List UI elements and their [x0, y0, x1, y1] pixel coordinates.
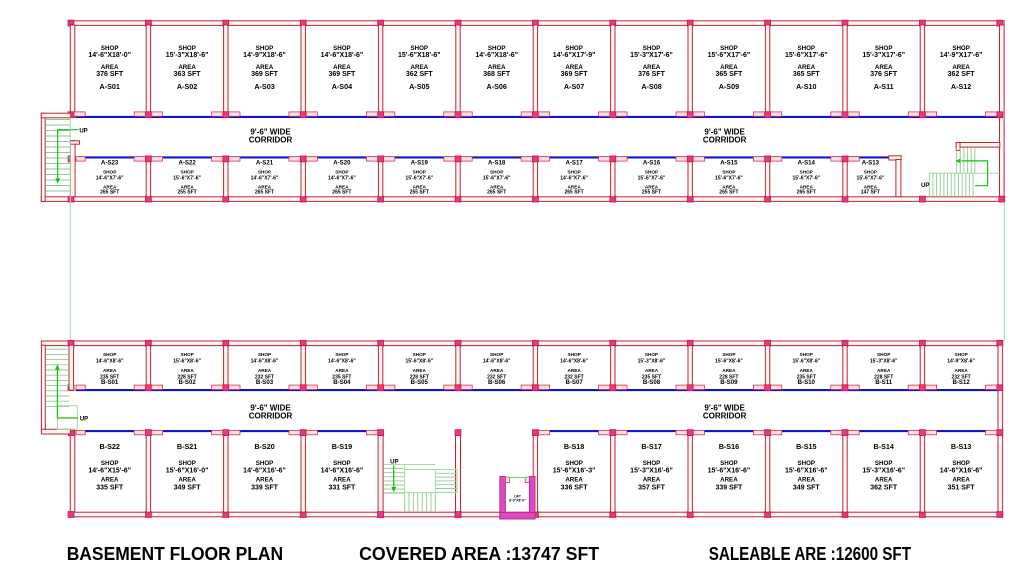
svg-text:UP: UP — [79, 129, 87, 135]
svg-text:SHOP: SHOP — [258, 169, 271, 174]
svg-text:15'-6"X18'-6": 15'-6"X18'-6" — [398, 52, 441, 59]
svg-text:AREA: AREA — [256, 477, 274, 484]
svg-text:15'-6"X8'-6": 15'-6"X8'-6" — [405, 359, 433, 365]
svg-text:SHOP: SHOP — [413, 169, 426, 174]
svg-text:SHOP: SHOP — [952, 45, 970, 52]
svg-text:B-S20: B-S20 — [254, 442, 274, 451]
svg-text:A-S17: A-S17 — [565, 160, 583, 167]
svg-text:265 SFT: 265 SFT — [719, 189, 738, 195]
svg-text:A-S09: A-S09 — [719, 82, 739, 91]
svg-text:AREA: AREA — [643, 64, 661, 71]
svg-text:UP: UP — [921, 183, 929, 189]
svg-text:SHOP: SHOP — [567, 352, 580, 357]
svg-text:A-S22: A-S22 — [178, 160, 196, 167]
svg-text:SHOP: SHOP — [413, 352, 426, 357]
svg-text:AREA: AREA — [256, 64, 274, 71]
svg-text:AREA: AREA — [720, 64, 738, 71]
svg-text:CORRIDOR: CORRIDOR — [249, 412, 293, 421]
svg-text:SHOP: SHOP — [877, 352, 890, 357]
svg-text:SHOP: SHOP — [490, 169, 503, 174]
svg-text:B-S11: B-S11 — [875, 379, 893, 386]
svg-text:15'-6"X8'-6": 15'-6"X8'-6" — [173, 359, 201, 365]
svg-text:15'-6"X7'-6": 15'-6"X7'-6" — [173, 176, 201, 182]
svg-text:362 SFT: 362 SFT — [948, 71, 976, 78]
svg-text:AREA: AREA — [565, 477, 583, 484]
svg-text:SHOP: SHOP — [333, 45, 351, 52]
svg-text:SHOP: SHOP — [952, 460, 970, 467]
svg-text:AREA: AREA — [798, 477, 816, 484]
svg-text:357 SFT: 357 SFT — [638, 485, 666, 492]
svg-text:369 SFT: 369 SFT — [561, 71, 589, 78]
svg-text:A-S19: A-S19 — [411, 160, 429, 167]
svg-text:AREA: AREA — [800, 368, 814, 373]
svg-text:AREA: AREA — [643, 477, 661, 484]
svg-text:SALEABLE ARE :12600 SFT: SALEABLE ARE :12600 SFT — [709, 543, 912, 564]
svg-text:B-S21: B-S21 — [177, 442, 197, 451]
svg-text:14'-6"X7'-6": 14'-6"X7'-6" — [328, 176, 356, 182]
svg-text:14'-6"X16'-6": 14'-6"X16'-6" — [321, 467, 364, 474]
svg-text:SHOP: SHOP — [798, 460, 816, 467]
svg-text:SHOP: SHOP — [875, 460, 893, 467]
svg-text:265 SFT: 265 SFT — [797, 189, 816, 195]
svg-text:15'-3"X8'-6": 15'-3"X8'-6" — [870, 359, 898, 365]
svg-text:SHOP: SHOP — [720, 460, 738, 467]
svg-text:15'-3"X16'-6": 15'-3"X16'-6" — [862, 467, 905, 474]
svg-text:SHOP: SHOP — [178, 460, 196, 467]
svg-text:14'-6"X8'-6": 14'-6"X8'-6" — [96, 359, 124, 365]
svg-text:14'-6"X8'-6": 14'-6"X8'-6" — [328, 359, 356, 365]
svg-text:A-S07: A-S07 — [564, 82, 584, 91]
svg-text:14'-6"X8'-6": 14'-6"X8'-6" — [251, 359, 279, 365]
svg-text:B-S12: B-S12 — [952, 379, 970, 386]
svg-text:SHOP: SHOP — [180, 352, 193, 357]
svg-text:B-S08: B-S08 — [643, 379, 661, 386]
svg-text:AREA: AREA — [952, 64, 970, 71]
svg-text:BASEMENT FLOOR PLAN: BASEMENT FLOOR PLAN — [67, 543, 284, 564]
svg-text:SHOP: SHOP — [488, 45, 506, 52]
svg-text:AREA: AREA — [178, 64, 196, 71]
svg-text:SHOP: SHOP — [800, 169, 813, 174]
svg-text:14'-9"X18'-6": 14'-9"X18'-6" — [243, 52, 286, 59]
svg-text:265 SFT: 265 SFT — [100, 189, 119, 195]
svg-text:B-S01: B-S01 — [101, 379, 119, 386]
svg-text:14'-6"X7'-6": 14'-6"X7'-6" — [251, 176, 279, 182]
svg-text:A-S04: A-S04 — [332, 82, 352, 91]
svg-text:14'-9"X8'-6": 14'-9"X8'-6" — [947, 359, 975, 365]
svg-text:15'-6"X16'-6": 15'-6"X16'-6" — [708, 467, 751, 474]
svg-text:AREA: AREA — [413, 368, 427, 373]
svg-text:AREA: AREA — [101, 64, 119, 71]
svg-text:15'-6"X7'-6": 15'-6"X7'-6" — [857, 176, 885, 182]
svg-text:AREA: AREA — [954, 368, 968, 373]
svg-text:376 SFT: 376 SFT — [638, 71, 666, 78]
svg-text:335 SFT: 335 SFT — [96, 485, 124, 492]
svg-text:147 SFT: 147 SFT — [861, 189, 880, 195]
svg-text:339 SFT: 339 SFT — [715, 485, 743, 492]
svg-text:14'-6"X15'-6": 14'-6"X15'-6" — [88, 467, 131, 474]
svg-text:AREA: AREA — [565, 64, 583, 71]
svg-text:AREA: AREA — [333, 64, 351, 71]
svg-text:265 SFT: 265 SFT — [332, 189, 351, 195]
svg-text:B-S17: B-S17 — [641, 442, 661, 451]
svg-text:362 SFT: 362 SFT — [870, 485, 898, 492]
svg-text:B-S18: B-S18 — [564, 442, 584, 451]
svg-text:368 SFT: 368 SFT — [483, 71, 511, 78]
svg-text:B-S07: B-S07 — [565, 379, 583, 386]
svg-text:B-S06: B-S06 — [488, 379, 506, 386]
svg-text:B-S02: B-S02 — [178, 379, 196, 386]
svg-text:B-S10: B-S10 — [798, 379, 816, 386]
svg-text:AREA: AREA — [178, 477, 196, 484]
svg-text:SHOP: SHOP — [335, 352, 348, 357]
svg-text:15'-3"X17'-6": 15'-3"X17'-6" — [630, 52, 673, 59]
svg-text:14'-6"X7'-6": 14'-6"X7'-6" — [560, 176, 588, 182]
svg-text:SHOP: SHOP — [800, 352, 813, 357]
svg-text:14'-6"X16'-6": 14'-6"X16'-6" — [243, 467, 286, 474]
svg-text:B-S14: B-S14 — [874, 442, 894, 451]
svg-text:336 SFT: 336 SFT — [561, 485, 589, 492]
svg-text:15'-6"X8'-6": 15'-6"X8'-6" — [792, 359, 820, 365]
svg-text:A-S13: A-S13 — [862, 160, 880, 167]
svg-text:AREA: AREA — [101, 477, 119, 484]
svg-text:349 SFT: 349 SFT — [793, 485, 821, 492]
svg-text:15'-6"X17'-6": 15'-6"X17'-6" — [708, 52, 751, 59]
svg-text:A-S20: A-S20 — [333, 160, 351, 167]
svg-text:15'-3"X16'-6": 15'-3"X16'-6" — [630, 467, 673, 474]
svg-text:365 SFT: 365 SFT — [793, 71, 821, 78]
svg-text:363 SFT: 363 SFT — [174, 71, 202, 78]
svg-text:SHOP: SHOP — [180, 169, 193, 174]
svg-text:COVERED AREA :13747 SFT: COVERED AREA :13747 SFT — [359, 543, 600, 564]
svg-text:14'-6"X18'-6": 14'-6"X18'-6" — [475, 52, 518, 59]
svg-text:339 SFT: 339 SFT — [251, 485, 279, 492]
svg-text:369 SFT: 369 SFT — [251, 71, 279, 78]
svg-text:SHOP: SHOP — [178, 45, 196, 52]
svg-text:AREA: AREA — [875, 477, 893, 484]
svg-text:AREA: AREA — [720, 477, 738, 484]
svg-text:A-S11: A-S11 — [874, 82, 894, 91]
svg-text:351 SFT: 351 SFT — [948, 485, 976, 492]
svg-text:UP: UP — [390, 459, 398, 465]
svg-text:SHOP: SHOP — [490, 352, 503, 357]
svg-text:AREA: AREA — [877, 368, 891, 373]
svg-text:CORRIDOR: CORRIDOR — [249, 136, 293, 145]
svg-text:SHOP: SHOP — [798, 45, 816, 52]
svg-text:SHOP: SHOP — [875, 45, 893, 52]
svg-text:331 SFT: 331 SFT — [328, 485, 356, 492]
svg-text:B-S13: B-S13 — [951, 442, 971, 451]
svg-text:SHOP: SHOP — [567, 169, 580, 174]
svg-text:SHOP: SHOP — [335, 169, 348, 174]
svg-text:AREA: AREA — [335, 368, 349, 373]
svg-text:A-S16: A-S16 — [643, 160, 661, 167]
svg-text:AREA: AREA — [488, 64, 506, 71]
svg-text:265 SFT: 265 SFT — [565, 189, 584, 195]
svg-text:255 SFT: 255 SFT — [178, 189, 197, 195]
svg-text:A-S01: A-S01 — [100, 82, 120, 91]
svg-text:255 SFT: 255 SFT — [410, 189, 429, 195]
svg-text:15'-6"X17'-6": 15'-6"X17'-6" — [785, 52, 828, 59]
svg-text:SHOP: SHOP — [645, 352, 658, 357]
svg-text:SHOP: SHOP — [256, 45, 274, 52]
svg-text:B-S15: B-S15 — [796, 442, 816, 451]
svg-text:8'-0"X8'-0": 8'-0"X8'-0" — [509, 499, 526, 503]
svg-text:14'-6"X8'-6": 14'-6"X8'-6" — [560, 359, 588, 365]
svg-text:AREA: AREA — [798, 64, 816, 71]
svg-text:349 SFT: 349 SFT — [174, 485, 202, 492]
svg-text:265 SFT: 265 SFT — [487, 189, 506, 195]
svg-text:B-S03: B-S03 — [256, 379, 274, 386]
svg-text:SHOP: SHOP — [333, 460, 351, 467]
svg-text:A-S15: A-S15 — [720, 160, 738, 167]
svg-text:AREA: AREA — [875, 64, 893, 71]
svg-text:A-S12: A-S12 — [951, 82, 971, 91]
svg-text:SHOP: SHOP — [258, 352, 271, 357]
svg-text:B-S19: B-S19 — [332, 442, 352, 451]
svg-text:265 SFT: 265 SFT — [255, 189, 274, 195]
svg-text:15'-6"X16'-3": 15'-6"X16'-3" — [553, 467, 596, 474]
svg-text:SHOP: SHOP — [101, 45, 119, 52]
svg-text:SHOP: SHOP — [722, 352, 735, 357]
svg-text:UP: UP — [80, 417, 88, 423]
svg-text:A-S05: A-S05 — [409, 82, 429, 91]
svg-text:14'-6"X17'-9": 14'-6"X17'-9" — [553, 52, 596, 59]
svg-text:A-S02: A-S02 — [177, 82, 197, 91]
svg-text:A-S18: A-S18 — [488, 160, 506, 167]
svg-text:14'-6"X8'-6": 14'-6"X8'-6" — [483, 359, 511, 365]
svg-text:14'-6"X18'-6": 14'-6"X18'-6" — [321, 52, 364, 59]
svg-text:SHOP: SHOP — [954, 352, 967, 357]
svg-text:B-S09: B-S09 — [720, 379, 738, 386]
svg-text:A-S03: A-S03 — [254, 82, 274, 91]
svg-text:15'-6"X7'-6": 15'-6"X7'-6" — [792, 176, 820, 182]
svg-text:AREA: AREA — [952, 477, 970, 484]
svg-text:15'-6"X16'-0": 15'-6"X16'-0" — [166, 467, 209, 474]
svg-text:SHOP: SHOP — [101, 460, 119, 467]
svg-text:255 SFT: 255 SFT — [642, 189, 661, 195]
svg-text:CORRIDOR: CORRIDOR — [703, 412, 747, 421]
svg-text:14'-9"X17'-6": 14'-9"X17'-6" — [940, 52, 983, 59]
svg-text:A-S08: A-S08 — [641, 82, 661, 91]
svg-text:SHOP: SHOP — [864, 169, 877, 174]
svg-text:376 SFT: 376 SFT — [96, 71, 124, 78]
svg-text:SHOP: SHOP — [103, 169, 116, 174]
svg-text:A-S23: A-S23 — [101, 160, 119, 167]
svg-text:SHOP: SHOP — [645, 169, 658, 174]
svg-text:362 SFT: 362 SFT — [406, 71, 434, 78]
svg-text:376 SFT: 376 SFT — [870, 71, 898, 78]
svg-text:SHOP: SHOP — [722, 169, 735, 174]
svg-text:SHOP: SHOP — [720, 45, 738, 52]
svg-text:CORRIDOR: CORRIDOR — [703, 136, 747, 145]
svg-text:15'-6"X7'-6": 15'-6"X7'-6" — [638, 176, 666, 182]
svg-text:14'-6"X7'-6": 14'-6"X7'-6" — [96, 176, 124, 182]
svg-text:15'-6"X7'-6": 15'-6"X7'-6" — [715, 176, 743, 182]
svg-text:15'-6"X16'-6": 15'-6"X16'-6" — [785, 467, 828, 474]
svg-text:SHOP: SHOP — [411, 45, 429, 52]
svg-text:A-S21: A-S21 — [256, 160, 274, 167]
svg-text:15'-3"X18'-6": 15'-3"X18'-6" — [166, 52, 209, 59]
svg-text:14'-6"X16'-6": 14'-6"X16'-6" — [940, 467, 983, 474]
svg-text:B-S05: B-S05 — [411, 379, 429, 386]
svg-text:A-S14: A-S14 — [798, 160, 816, 167]
svg-text:365 SFT: 365 SFT — [715, 71, 743, 78]
svg-text:B-S16: B-S16 — [719, 442, 739, 451]
svg-text:369 SFT: 369 SFT — [328, 71, 356, 78]
svg-text:14'-6"X18'-0": 14'-6"X18'-0" — [88, 52, 131, 59]
svg-text:SHOP: SHOP — [565, 45, 583, 52]
svg-text:A-S06: A-S06 — [487, 82, 507, 91]
svg-text:A-S10: A-S10 — [796, 82, 816, 91]
svg-text:AREA: AREA — [180, 368, 194, 373]
svg-text:AREA: AREA — [722, 368, 736, 373]
svg-text:AREA: AREA — [645, 368, 659, 373]
svg-text:15'-6"X7'-6": 15'-6"X7'-6" — [405, 176, 433, 182]
svg-text:B-S04: B-S04 — [333, 379, 351, 386]
svg-text:AREA: AREA — [411, 64, 429, 71]
svg-text:15'-3"X17'-6": 15'-3"X17'-6" — [862, 52, 905, 59]
svg-text:AREA: AREA — [567, 368, 581, 373]
svg-text:AREA: AREA — [103, 368, 117, 373]
svg-text:SHOP: SHOP — [256, 460, 274, 467]
svg-text:SHOP: SHOP — [565, 460, 583, 467]
svg-text:B-S22: B-S22 — [100, 442, 120, 451]
svg-text:SHOP: SHOP — [103, 352, 116, 357]
svg-text:15'-6"X8'-6": 15'-6"X8'-6" — [715, 359, 743, 365]
svg-text:SHOP: SHOP — [643, 45, 661, 52]
svg-text:AREA: AREA — [490, 368, 504, 373]
svg-text:SHOP: SHOP — [643, 460, 661, 467]
svg-text:15'-3"X8'-6": 15'-3"X8'-6" — [638, 359, 666, 365]
svg-text:AREA: AREA — [333, 477, 351, 484]
svg-text:AREA: AREA — [258, 368, 272, 373]
svg-text:15'-6"X7'-6": 15'-6"X7'-6" — [483, 176, 511, 182]
